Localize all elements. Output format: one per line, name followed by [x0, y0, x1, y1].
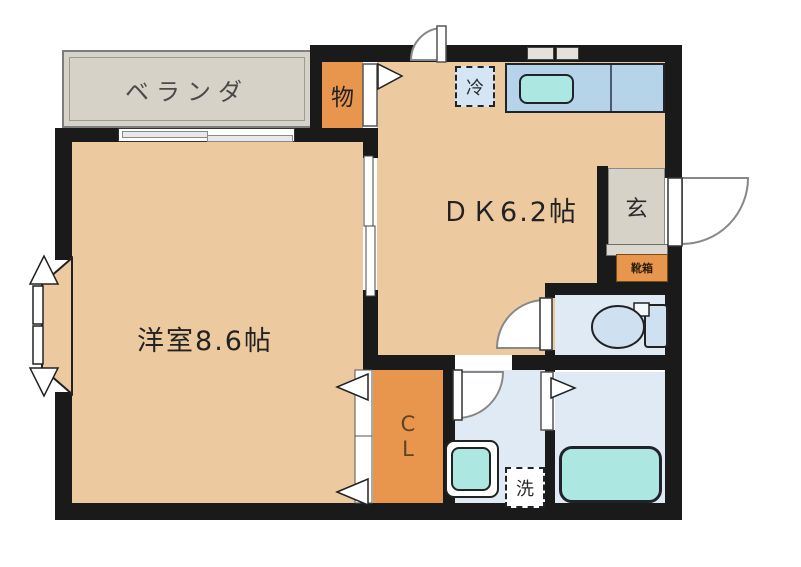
refrigerator-label: 冷 — [466, 74, 484, 100]
kitchen-sink — [519, 74, 574, 104]
closet-label: C L — [373, 370, 443, 503]
storage-label: 物 — [322, 62, 363, 128]
window-pane-left — [122, 131, 208, 138]
wall-toilet-left-upper — [545, 283, 555, 298]
toilet-room — [555, 295, 665, 355]
veranda-label: ベランダ — [62, 50, 312, 128]
wall-bottom — [55, 503, 682, 520]
wall-left-upper — [55, 128, 72, 260]
kitchen-vent-right — [556, 47, 579, 60]
bay-window — [30, 256, 72, 396]
shoe-cabinet: 靴箱 — [616, 254, 668, 282]
wall-toilet-top — [545, 283, 682, 295]
kitchen-counter-divider — [610, 65, 612, 111]
kitchen-counter — [505, 63, 665, 113]
washing-machine-label: 洗 — [516, 475, 534, 501]
entrance-door — [668, 178, 748, 246]
washing-machine-symbol: 洗 — [505, 467, 545, 508]
wall-dk-bottom-left — [363, 355, 455, 370]
shoe-cabinet-label: 靴箱 — [631, 260, 653, 276]
bathtub — [559, 446, 662, 503]
floor-plan: 玄 靴箱 冷 洗 — [0, 0, 801, 567]
dining-kitchen-label: ＤＫ6.2帖 — [400, 190, 620, 228]
window-pane-right — [207, 135, 293, 142]
wall-right-upper — [665, 45, 682, 178]
closet-label-l: L — [402, 437, 414, 461]
wall-dk-westernroom-upper — [363, 128, 378, 158]
western-room-label: 洋室8.6帖 — [95, 318, 315, 358]
wall-bath-left-lower — [545, 430, 555, 520]
kitchen-vent-left — [527, 47, 554, 60]
westernroom-dk-sliding-door — [364, 156, 375, 296]
wall-dk-bottom-right — [512, 355, 682, 370]
westernroom-top-window — [118, 128, 295, 142]
wall-washroom-closet-divider — [443, 355, 455, 520]
wall-toilet-left-mid — [545, 350, 555, 372]
refrigerator-symbol: 冷 — [455, 66, 495, 107]
wall-left-lower — [55, 392, 72, 520]
closet-label-c: C — [401, 412, 416, 436]
wall-top — [310, 45, 682, 62]
entrance-label: 玄 — [625, 191, 647, 223]
